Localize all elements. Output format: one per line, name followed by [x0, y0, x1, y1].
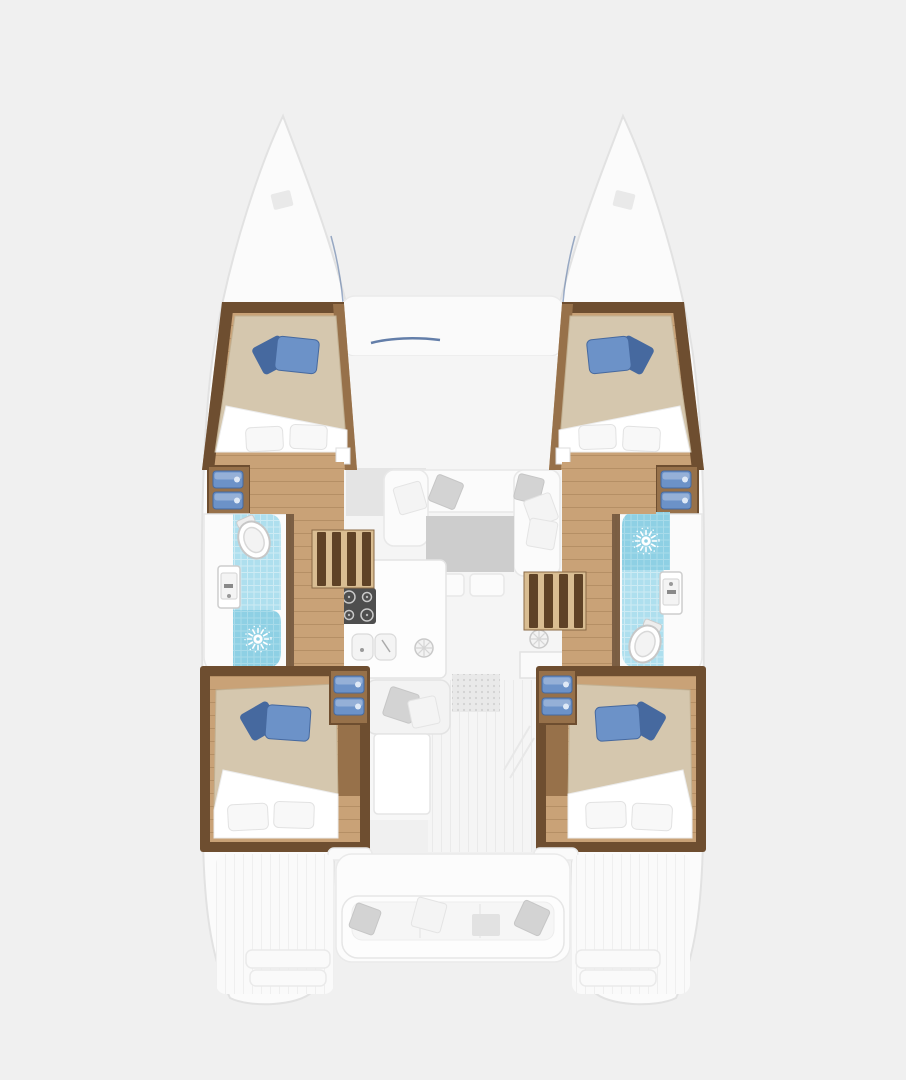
floor-mat-texture	[452, 674, 500, 712]
berth-panel	[374, 734, 430, 814]
sofa-seat-cushion	[470, 574, 504, 596]
bed-pillow	[622, 426, 660, 452]
stair-tread	[332, 532, 341, 586]
companionway-stairs-port	[312, 530, 374, 588]
stair-tread	[559, 574, 568, 628]
blue-drawer	[661, 471, 691, 488]
storage-cabinet-aft-starboard	[538, 670, 576, 724]
transom-step	[576, 950, 660, 968]
blue-drawer	[213, 492, 243, 509]
round-hatch-icon	[530, 630, 548, 648]
blue-drawer	[334, 676, 364, 693]
transom-step	[580, 970, 656, 986]
stair-tread	[544, 574, 553, 628]
bridge-deck	[341, 296, 564, 356]
stair-tread	[529, 574, 538, 628]
bed-pillow	[579, 424, 617, 449]
transom-steps-port	[246, 950, 330, 986]
stair-tread	[317, 532, 326, 586]
cabin-window	[336, 448, 350, 464]
pillow	[407, 695, 440, 728]
bathroom-wall	[612, 514, 620, 672]
washbasin-icon	[660, 572, 682, 614]
transom-step	[246, 950, 330, 968]
blue-cushion	[265, 705, 311, 742]
stove-icon	[340, 588, 376, 624]
aft-cabin-starboard	[536, 666, 706, 852]
cabin-window	[556, 448, 570, 464]
corridor-planks	[562, 462, 656, 514]
bed-pillow	[274, 801, 315, 828]
blue-cushion	[595, 705, 641, 742]
bathroom-wall	[286, 514, 294, 672]
stair-tread	[362, 532, 371, 586]
bathroom-port	[204, 512, 294, 672]
forward-cabin-starboard	[549, 302, 704, 470]
companionway-stairs-starboard	[524, 572, 586, 630]
cockpit-table	[472, 914, 500, 936]
pillow	[526, 518, 558, 550]
transom-steps-starboard	[576, 950, 660, 986]
aft-cabin-port	[200, 666, 370, 852]
bathroom-starboard	[612, 512, 702, 672]
blue-drawer	[542, 676, 572, 693]
storage-cabinet-forward-port	[208, 466, 250, 514]
foredeck-bridge	[341, 296, 564, 356]
cabin-wall-forward	[222, 302, 344, 313]
bed-pillow	[227, 803, 268, 831]
stair-tread	[574, 574, 583, 628]
blue-drawer	[542, 698, 572, 715]
corridor-planks	[250, 462, 344, 514]
stair-tread	[347, 532, 356, 586]
bed-pillow	[631, 803, 672, 831]
catamaran-floorplan	[0, 0, 906, 1080]
blue-drawer	[334, 698, 364, 715]
bed-pillow	[586, 801, 627, 828]
cabin-wall-forward	[562, 302, 684, 313]
washbasin-icon	[218, 566, 240, 608]
floorplan-canvas	[0, 0, 906, 1080]
transom-step	[250, 970, 326, 986]
storage-cabinet-forward-starboard	[656, 466, 698, 514]
bed-pillow	[290, 424, 328, 449]
forward-cabin-port	[202, 302, 357, 470]
round-hatch-icon	[415, 639, 433, 657]
storage-cabinet-aft-port	[330, 670, 368, 724]
blue-drawer	[661, 492, 691, 509]
blue-cushion	[586, 336, 631, 374]
blue-drawer	[213, 471, 243, 488]
aft-bench	[342, 896, 564, 958]
bed-pillow	[245, 426, 283, 452]
blue-cushion	[274, 336, 319, 374]
